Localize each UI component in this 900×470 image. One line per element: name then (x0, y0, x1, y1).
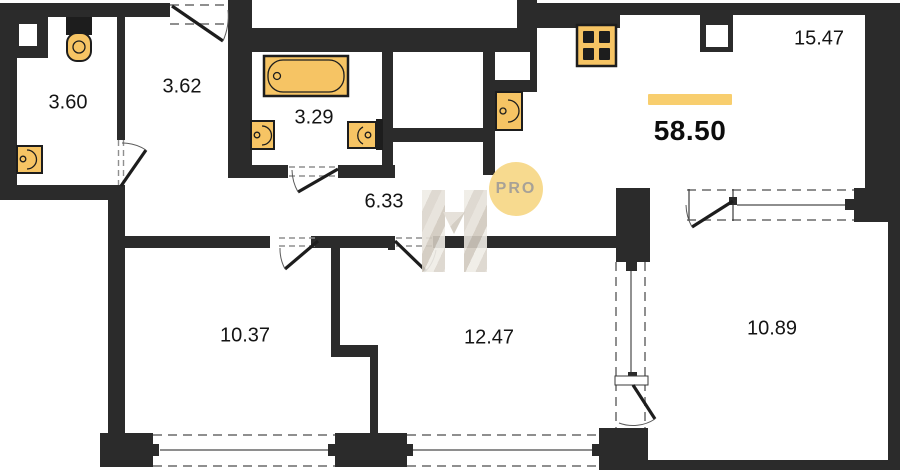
area-label-corridor: 6.33 (365, 191, 404, 214)
wall (235, 165, 288, 178)
area-label-room-right: 10.89 (747, 318, 797, 341)
area-label-bathroom: 3.29 (295, 107, 334, 130)
room-middle-door-swing-icon (395, 238, 436, 271)
wall (517, 0, 537, 52)
wall (117, 17, 125, 140)
pro-badge-text: PRO (496, 180, 537, 198)
wall (108, 200, 125, 436)
wall (100, 433, 153, 467)
wall (382, 52, 393, 178)
walls-layer (0, 0, 900, 470)
floorplan-drawing (0, 0, 900, 470)
windows-layer (150, 5, 855, 466)
window-cap (845, 199, 855, 210)
area-label-entry-hall: 3.62 (163, 76, 202, 99)
room-right-door-swing-icon (686, 189, 737, 227)
window-cap (626, 262, 637, 271)
wall (331, 345, 378, 357)
bathtub-icon (264, 56, 348, 96)
area-label-room-left: 10.37 (220, 325, 270, 348)
wall (228, 28, 537, 52)
wall (495, 80, 537, 92)
area-label-wc: 3.60 (49, 92, 88, 115)
wall (335, 433, 407, 467)
sink-icon (251, 121, 274, 149)
wall (382, 128, 495, 142)
wall (620, 3, 900, 15)
total-area-label: 58.50 (654, 115, 727, 147)
wall (865, 3, 900, 219)
wall (0, 3, 17, 200)
area-label-room-middle: 12.47 (464, 327, 514, 350)
bathroom-door-swing-icon (289, 167, 338, 192)
pro-badge: PRO (489, 162, 543, 216)
wall-niche (19, 24, 37, 46)
wall (125, 236, 270, 248)
wall (433, 236, 620, 248)
wall (888, 218, 900, 470)
wall (854, 188, 900, 222)
wall (388, 236, 395, 250)
wall (483, 52, 495, 175)
window-cap (328, 444, 337, 456)
window-cap (592, 444, 601, 456)
window-cap (404, 444, 413, 456)
vent-shaft-opening (706, 25, 728, 47)
wall (370, 357, 378, 435)
wall (0, 185, 125, 200)
toilet-icon (66, 17, 92, 61)
floorplan-page: 3.60 3.62 3.29 6.33 15.47 10.37 12.47 10… (0, 0, 900, 470)
stove-icon (577, 25, 616, 66)
wall (338, 165, 395, 178)
sink-icon (496, 92, 522, 130)
window-cap (150, 444, 159, 456)
wall (599, 428, 648, 470)
wall (616, 188, 650, 262)
sink-icon (17, 146, 42, 173)
total-area-accent-bar (648, 94, 732, 105)
wall (228, 0, 252, 178)
room-right-side-door-swing-icon (615, 376, 655, 426)
wall (331, 248, 340, 345)
wall (645, 460, 900, 470)
wall (0, 3, 170, 17)
area-label-kitchen-living: 15.47 (794, 28, 844, 51)
sink-icon (348, 119, 383, 150)
wall (340, 236, 388, 248)
wc-door-swing-icon (119, 140, 147, 186)
